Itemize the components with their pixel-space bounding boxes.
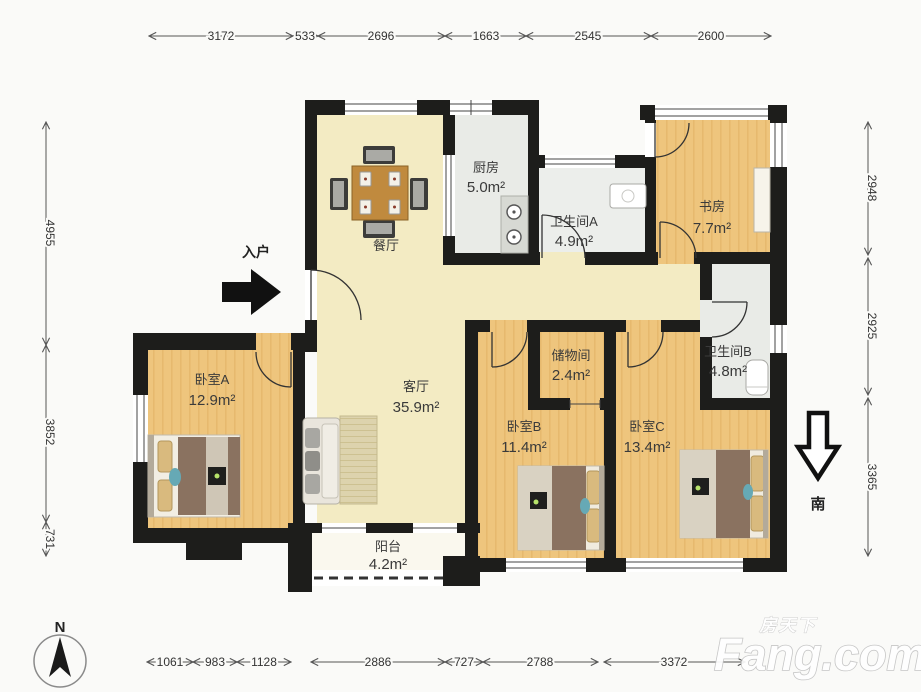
window-bedA-left — [133, 395, 148, 462]
dim-top-4: 2545 — [575, 29, 602, 43]
south-label: 南 — [810, 495, 825, 513]
bathA-washer — [610, 184, 646, 208]
room-label-bedC: 卧室C — [629, 419, 664, 434]
dim-bottom-4: 727 — [454, 655, 474, 669]
dim-top-1: 533 — [295, 29, 315, 43]
bathB-toilet — [746, 360, 768, 395]
room-label-bathB: 卫生间B — [704, 344, 752, 359]
room-label-dining: 餐厅 — [373, 238, 399, 253]
room-label-bedA: 卧室A — [195, 372, 230, 387]
room-area-bathA: 4.9m² — [555, 233, 593, 250]
entry-label: 入户 — [242, 244, 270, 260]
dim-right-2: 3365 — [865, 464, 879, 491]
room-area-bedB: 11.4m² — [501, 439, 547, 456]
room-label-living: 客厅 — [403, 379, 429, 394]
watermark-en: Fang.com — [714, 629, 921, 680]
window-study-right — [770, 123, 787, 167]
compass-north-label: N — [55, 619, 66, 636]
room-area-bedA: 12.9m² — [189, 392, 236, 409]
room-area-storage: 2.4m² — [552, 367, 590, 384]
floorplan-canvas: 餐厅 厨房 5.0m² 卫生间A 4.9m² 书房 7.7m² 客厅 35.9m… — [0, 0, 921, 692]
rug — [340, 416, 377, 504]
window-kitchen-top — [450, 100, 492, 115]
storage-opening — [570, 398, 600, 410]
dim-bottom-0: 1061 — [157, 655, 184, 669]
room-label-bedB: 卧室B — [507, 419, 542, 434]
sofa — [303, 418, 340, 504]
window-bedB-bottom — [506, 558, 586, 572]
dim-top-0: 3172 — [208, 29, 235, 43]
dim-bottom-1: 983 — [205, 655, 225, 669]
room-label-balcony: 阳台 — [375, 539, 401, 554]
bedB-bed — [518, 466, 604, 550]
room-area-study: 7.7m² — [693, 220, 731, 237]
dim-top-2: 2696 — [368, 29, 395, 43]
room-area-living: 35.9m² — [393, 399, 440, 416]
room-area-bathB: 4.8m² — [709, 363, 747, 380]
window-bathB-right — [770, 325, 787, 353]
kitchen-opening — [443, 155, 455, 236]
dim-right-1: 2925 — [865, 313, 879, 340]
room-label-study: 书房 — [699, 199, 725, 214]
dim-left-2: 731 — [43, 529, 57, 549]
dim-left-0: 4955 — [43, 220, 57, 247]
dim-bottom-5: 2788 — [527, 655, 554, 669]
dim-bottom-2: 1128 — [251, 655, 277, 669]
bedA-bed — [148, 435, 240, 517]
dim-bottom-3: 2886 — [365, 655, 392, 669]
dim-bottom-6: 3372 — [661, 655, 688, 669]
room-label-kitchen: 厨房 — [473, 160, 499, 175]
dim-right-0: 2948 — [865, 175, 879, 202]
window-bathA-top — [545, 155, 615, 168]
window-dining-top — [345, 100, 417, 115]
room-area-bedC: 13.4m² — [624, 439, 671, 456]
room-label-bathA: 卫生间A — [550, 214, 598, 229]
dim-left-1: 3852 — [43, 419, 57, 446]
balcony-slider-right — [413, 523, 457, 533]
floorplan-svg: 餐厅 厨房 5.0m² 卫生间A 4.9m² 书房 7.7m² 客厅 35.9m… — [0, 0, 921, 692]
kitchen-stove — [501, 196, 528, 253]
study-desk — [754, 168, 770, 232]
window-bedC-bottom — [626, 558, 743, 572]
room-area-kitchen: 5.0m² — [467, 179, 505, 196]
room-label-storage: 储物间 — [551, 348, 590, 363]
room-area-balcony: 4.2m² — [369, 556, 407, 573]
window-study-top — [655, 105, 768, 120]
dim-top-3: 1663 — [473, 29, 500, 43]
dim-top-5: 2600 — [698, 29, 725, 43]
balcony-slider-left — [322, 523, 366, 533]
bedC-bed — [680, 450, 768, 538]
